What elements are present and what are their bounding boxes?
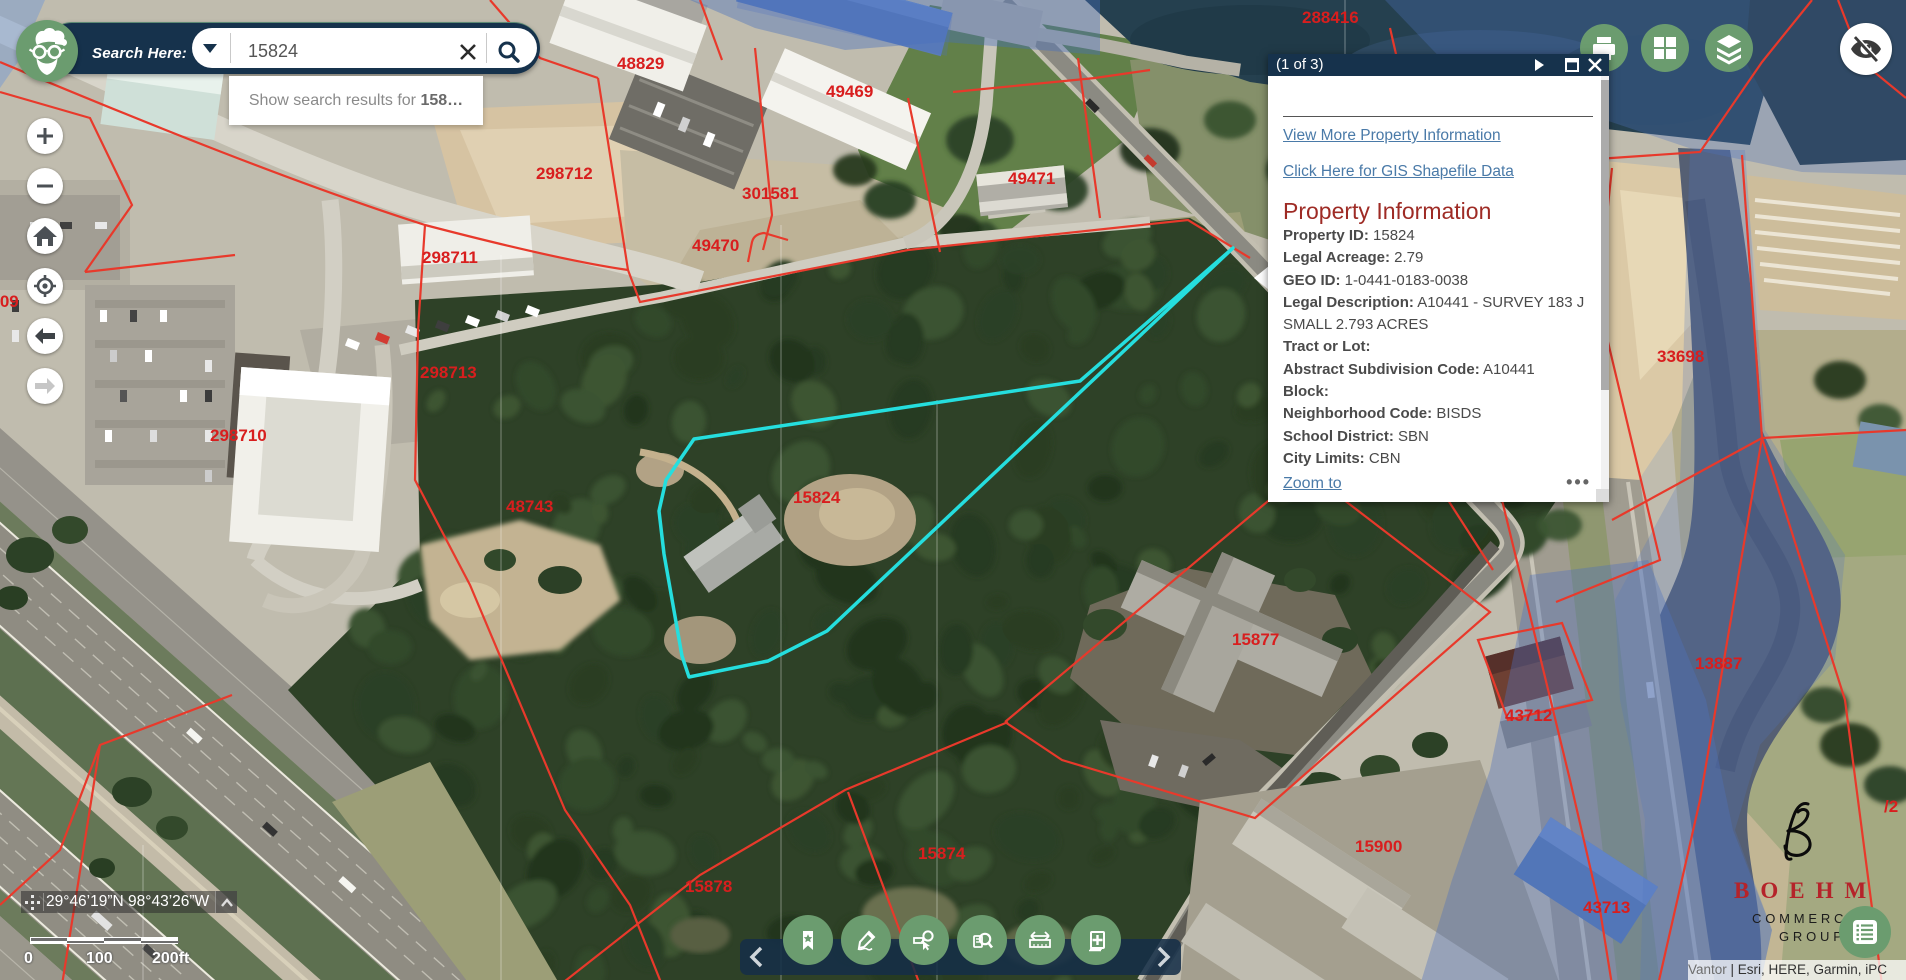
svg-text:298713: 298713 [420, 363, 477, 382]
svg-text:49470: 49470 [692, 236, 739, 255]
svg-text:48829: 48829 [617, 54, 664, 73]
svg-text:288416: 288416 [1302, 8, 1359, 27]
svg-text:15874: 15874 [918, 844, 966, 863]
svg-text:49471: 49471 [1008, 169, 1055, 188]
svg-text:48743: 48743 [506, 497, 553, 516]
svg-text:15878: 15878 [685, 877, 732, 896]
svg-text:33698: 33698 [1657, 347, 1704, 366]
svg-text:298710: 298710 [210, 426, 267, 445]
svg-text:15824: 15824 [793, 488, 841, 507]
svg-text:298711: 298711 [422, 248, 478, 267]
svg-text:298712: 298712 [536, 164, 593, 183]
svg-text:43713: 43713 [1583, 898, 1630, 917]
svg-text:15877: 15877 [1232, 630, 1279, 649]
svg-text:301581: 301581 [742, 184, 799, 203]
svg-text:13887: 13887 [1695, 654, 1742, 673]
svg-text:43712: 43712 [1505, 706, 1552, 725]
svg-text:49469: 49469 [826, 82, 873, 101]
svg-text:/2: /2 [1884, 797, 1898, 816]
svg-text:298709: 298709 [0, 292, 19, 311]
svg-text:15900: 15900 [1355, 837, 1402, 856]
